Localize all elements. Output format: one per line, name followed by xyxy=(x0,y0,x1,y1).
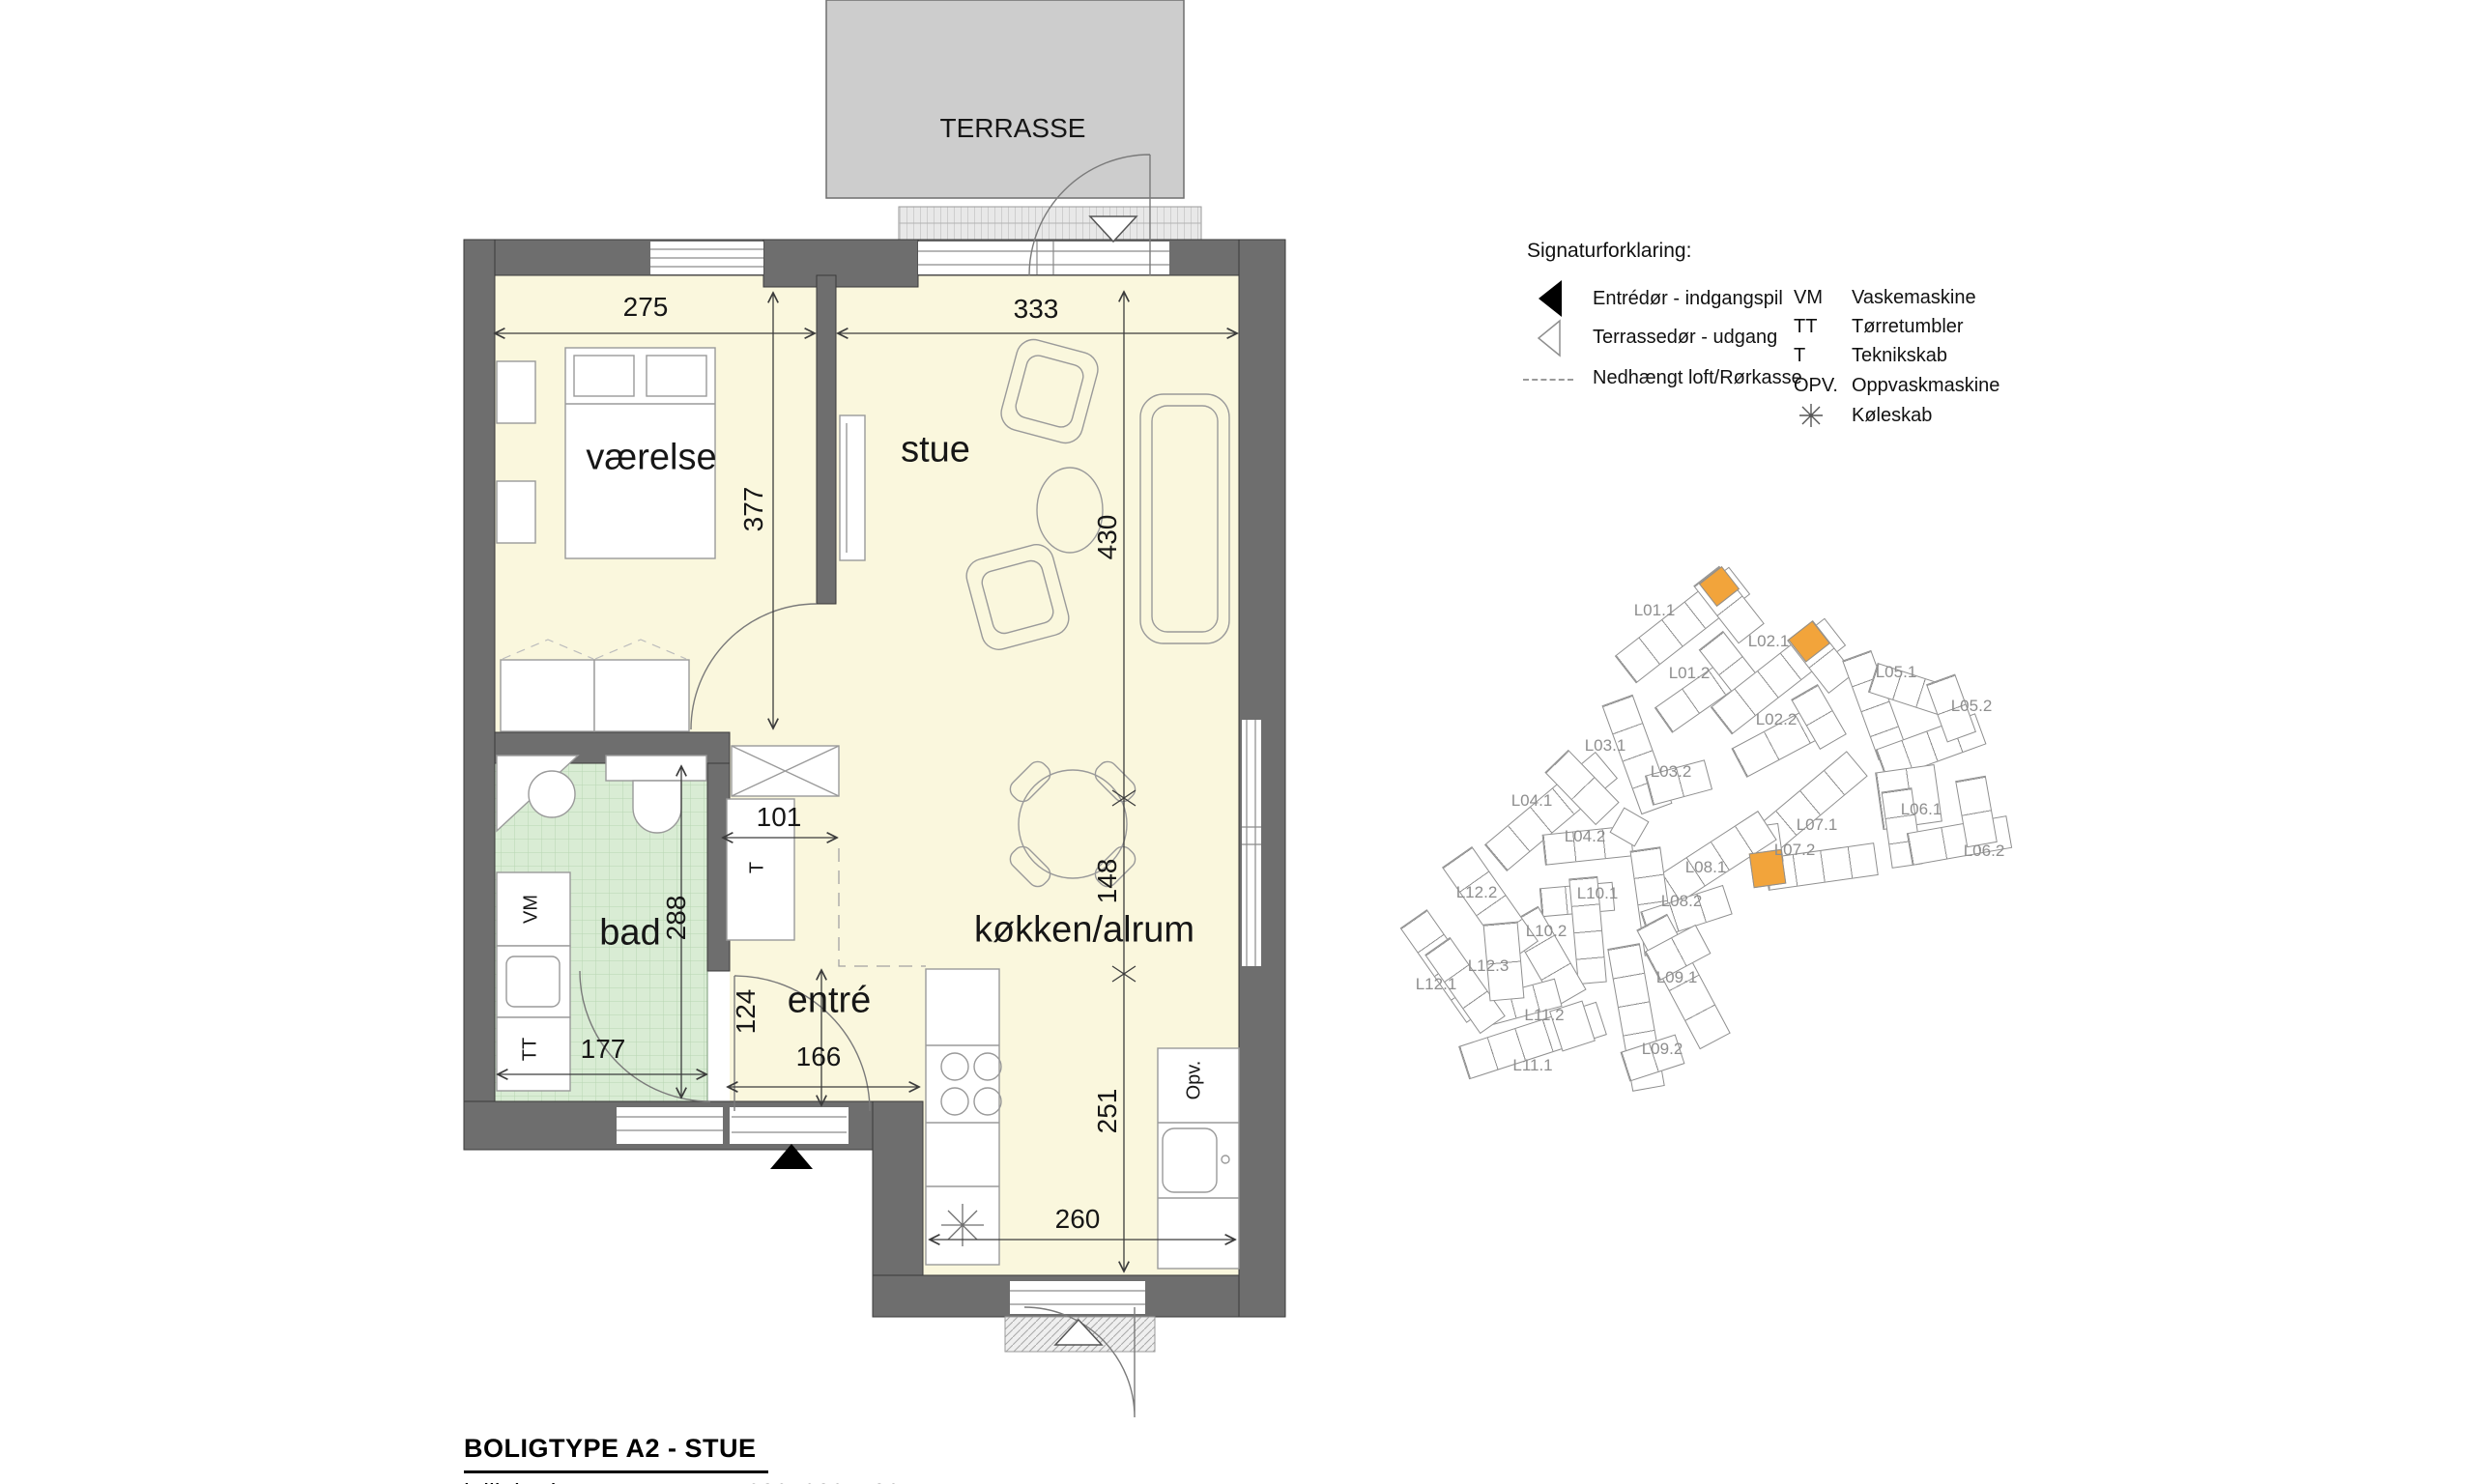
site-label-l11-2: L11.2 xyxy=(1524,1006,1564,1025)
site-label-l06-1: L06.1 xyxy=(1901,800,1942,819)
site-label-l07-2: L07.2 xyxy=(1774,841,1816,860)
site-label-l10-1: L10.1 xyxy=(1577,884,1619,903)
site-label-l06-2: L06.2 xyxy=(1964,842,2005,861)
site-label-l02-2: L02.2 xyxy=(1756,710,1798,729)
site-label-l12-1: L12.1 xyxy=(1416,975,1457,994)
site-label-l08-1: L08.1 xyxy=(1685,858,1727,877)
site-label-l01-1: L01.1 xyxy=(1634,601,1676,620)
site-label-l04-2: L04.2 xyxy=(1565,827,1606,846)
site-label-l04-1: L04.1 xyxy=(1511,791,1553,811)
site-label-l12-3: L12.3 xyxy=(1468,956,1510,976)
page-title: BOLIGTYPE A2 - STUE xyxy=(464,1434,768,1473)
site-label-l03-1: L03.1 xyxy=(1585,736,1626,756)
site-label-l07-1: L07.1 xyxy=(1797,815,1838,835)
site-label-l02-1: L02.1 xyxy=(1748,632,1790,651)
site-label-l03-2: L03.2 xyxy=(1651,762,1692,782)
title-block: BOLIGTYPE A2 - STUE lejlighedsnumre: 303… xyxy=(464,1434,901,1484)
site-label-l05-2: L05.2 xyxy=(1951,697,1993,716)
site-label-l08-2: L08.2 xyxy=(1661,892,1703,911)
subtitle-label: lejlighedsnumre: xyxy=(464,1478,647,1484)
site-label-l10-2: L10.2 xyxy=(1526,922,1568,941)
page-subtitle: lejlighedsnumre: 303, 303, 103 xyxy=(464,1478,901,1484)
floorplan-page: TERRASSEværelsestuebadentrékøkken/alrum2… xyxy=(0,0,2474,1484)
site-plan: L01.1L01.2L02.1L02.2L03.1L03.2L04.1L04.2… xyxy=(0,0,2474,1484)
site-label-l09-1: L09.1 xyxy=(1656,968,1698,987)
site-label-l01-2: L01.2 xyxy=(1669,664,1711,683)
site-label-l05-1: L05.1 xyxy=(1876,663,1917,682)
site-label-l11-1: L11.1 xyxy=(1512,1056,1552,1075)
subtitle-numbers: 303, 303, 103 xyxy=(747,1478,901,1484)
site-label-l09-2: L09.2 xyxy=(1642,1040,1683,1059)
site-label-l12-2: L12.2 xyxy=(1456,883,1498,902)
